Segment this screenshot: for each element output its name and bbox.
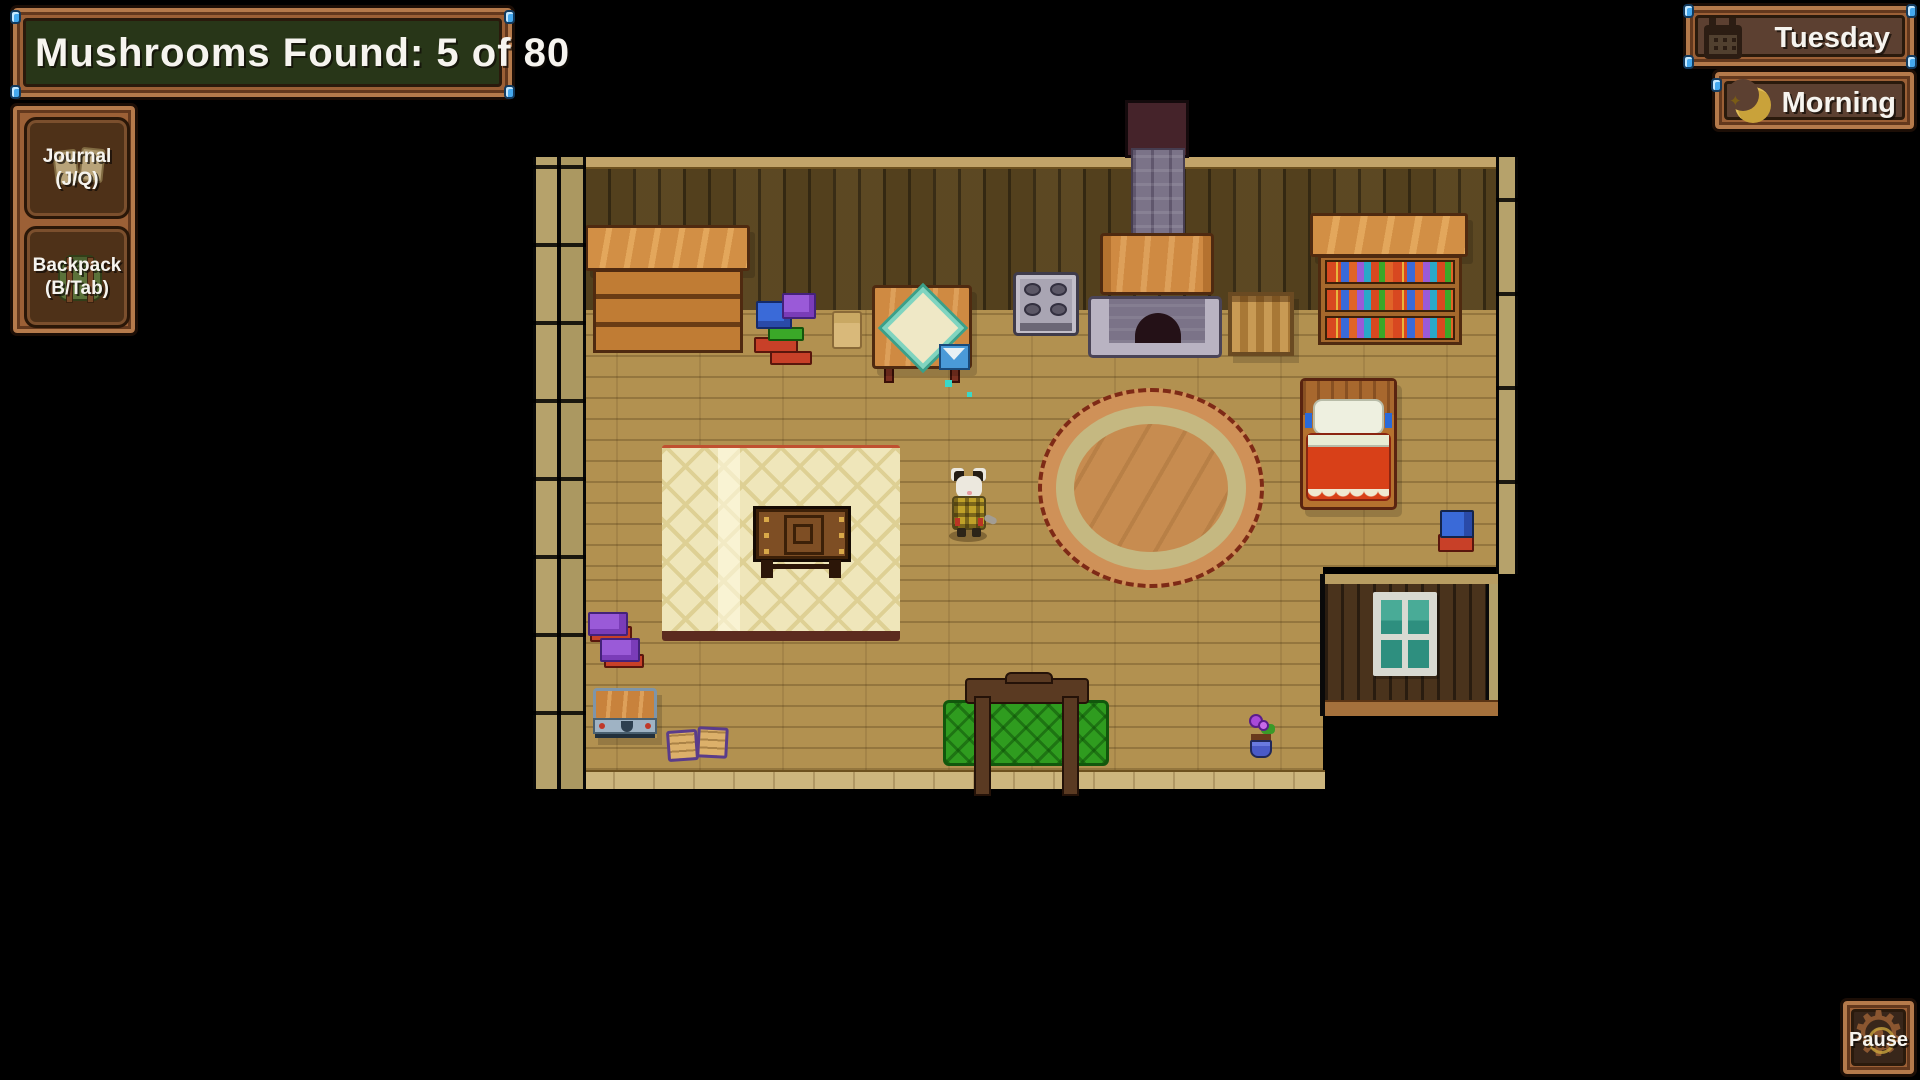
alcove-sill [1325,700,1498,716]
moon-star: ✦ [1729,92,1742,110]
side-table [872,285,972,369]
bookshelf-row-3 [1325,316,1455,340]
mushroom-counter-panel: Mushrooms Found: 5 of 80 [10,5,515,100]
table-leg-left [884,367,894,383]
purple-stack-book-1 [588,612,628,636]
envelope-flap [943,348,965,360]
desk-knob-6 [839,549,844,554]
backpack-button-label: Backpack (B/Tab) [27,254,127,300]
bed [1300,378,1397,510]
floor-lower [533,567,1323,770]
desk-leg-rail [769,564,833,569]
desk-knob-4 [839,517,844,522]
chest-base [595,734,655,738]
blanket-fold [1308,435,1389,447]
journal-button-label: Journal (J/Q) [27,145,127,191]
stove-base [1020,323,1072,331]
gem-pin-icon [1711,78,1722,92]
book-pile [752,293,816,367]
character-body [952,496,986,530]
bed-strap-left [1305,413,1312,428]
time-label: Morning [1782,87,1896,120]
character-foot-left [957,528,966,537]
bedside-book-stack [1438,510,1476,558]
envelope [939,344,970,370]
dresser-top [585,225,750,271]
purple-book-stack [588,612,638,672]
player-character [948,466,996,542]
open-book [667,727,731,763]
day-panel: Tuesday [1683,3,1917,69]
writing-desk [753,506,851,562]
desk-knob-5 [839,533,844,538]
right-wall-edge [1496,157,1518,574]
open-book-page-right [696,726,729,759]
pause-button[interactable]: ⚙ Pause [1840,998,1917,1077]
character-head [956,476,982,498]
sparkle-dot-1 [945,380,952,387]
stove [1013,272,1079,336]
left-wall-edge [533,157,586,789]
open-book-page-left [666,729,699,762]
alcove-right-edge [1486,584,1498,700]
rug-fold [718,448,740,631]
hud-menu-panel: Journal (J/Q) Backpack (B/Tab) [10,103,138,336]
desk-knob-2 [764,533,769,538]
flower-pot [1245,714,1277,762]
gem-pin-icon [10,10,21,24]
pot-body [1250,740,1272,758]
burner-2 [1050,283,1067,296]
chest-lid [593,688,657,721]
gem-pin-icon [504,10,515,24]
bed-pillow [1313,399,1384,435]
burner-3 [1024,303,1041,316]
character-belt-left [955,518,960,526]
couch-leg-right [1062,696,1079,796]
day-label: Tuesday [1774,22,1890,55]
gem-pin-icon [1906,4,1917,18]
character-nose [967,491,972,495]
fireplace-hearth [1088,296,1222,358]
desk-panel-inner [793,524,813,544]
backpack-button[interactable]: Backpack (B/Tab) [24,226,130,328]
crescent-moon-icon: ✦ [1731,83,1773,125]
blanket-trim [1308,489,1389,501]
window-mullion-h [1381,634,1429,640]
book-purple [782,293,816,319]
sparkle-dot-2 [967,392,972,397]
wall-top-edge [533,157,1518,169]
bed-blanket [1306,433,1391,501]
desk-knob-3 [764,549,769,554]
chest-latch [621,721,633,732]
couch-leg-left [974,696,991,796]
gem-pin-icon [504,85,515,99]
mushroom-counter-label: Mushrooms Found: 5 of 80 [35,31,570,76]
calendar-grid [1709,35,1737,54]
calendar-icon [1704,18,1742,60]
time-panel: ✦ Morning [1712,69,1917,132]
chest-dot-right [645,723,651,729]
chest-front [593,718,657,734]
purple-stack-book-2 [600,638,640,662]
storage-chest [593,688,657,738]
dresser-drawers [593,269,743,353]
bookshelf-body [1318,255,1462,345]
bookshelf-row-2 [1325,288,1455,312]
gem-pin-icon [10,85,21,99]
round-rug [1038,388,1264,588]
floor-bottom-sill [533,770,1325,789]
stack-book-blue [1440,510,1474,538]
firewood-crate [1228,292,1294,356]
character-belt-right [978,518,983,526]
desk-panel [784,515,824,555]
window-alcove [1320,574,1498,716]
alcove-top-strip [1325,574,1498,584]
round-rug-center [1074,424,1228,552]
desk-knob-1 [764,517,769,522]
flower-bloom-2 [1258,720,1269,731]
gem-pin-icon [1683,55,1694,69]
calendar-body [1704,25,1742,59]
window [1373,592,1437,676]
journal-button[interactable]: Journal (J/Q) [24,117,130,219]
desk-leg-right [829,560,841,578]
book-green [768,327,804,341]
couch-frame-hump [1005,672,1053,684]
paper-scrap [832,311,862,349]
bed-strap-right [1385,413,1392,428]
bookshelf-row-1 [1325,260,1455,284]
bookshelf-top [1310,213,1468,257]
gem-pin-icon [1906,55,1917,69]
chest-dot-left [599,723,605,729]
character-foot-right [972,528,981,537]
burner-1 [1024,283,1041,296]
game-screen: Mushrooms Found: 5 of 80 Journal (J/Q) [0,0,1920,1080]
book-red-2 [770,351,812,365]
fireplace-mantel [1100,233,1214,295]
chimney-bricks [1131,148,1185,244]
desk-leg-left [761,560,773,578]
burner-4 [1050,303,1067,316]
green-couch [943,700,1109,766]
pause-label: Pause [1843,1029,1914,1052]
character-shadow [949,530,987,542]
gem-pin-icon [1683,4,1694,18]
room [533,100,1518,802]
